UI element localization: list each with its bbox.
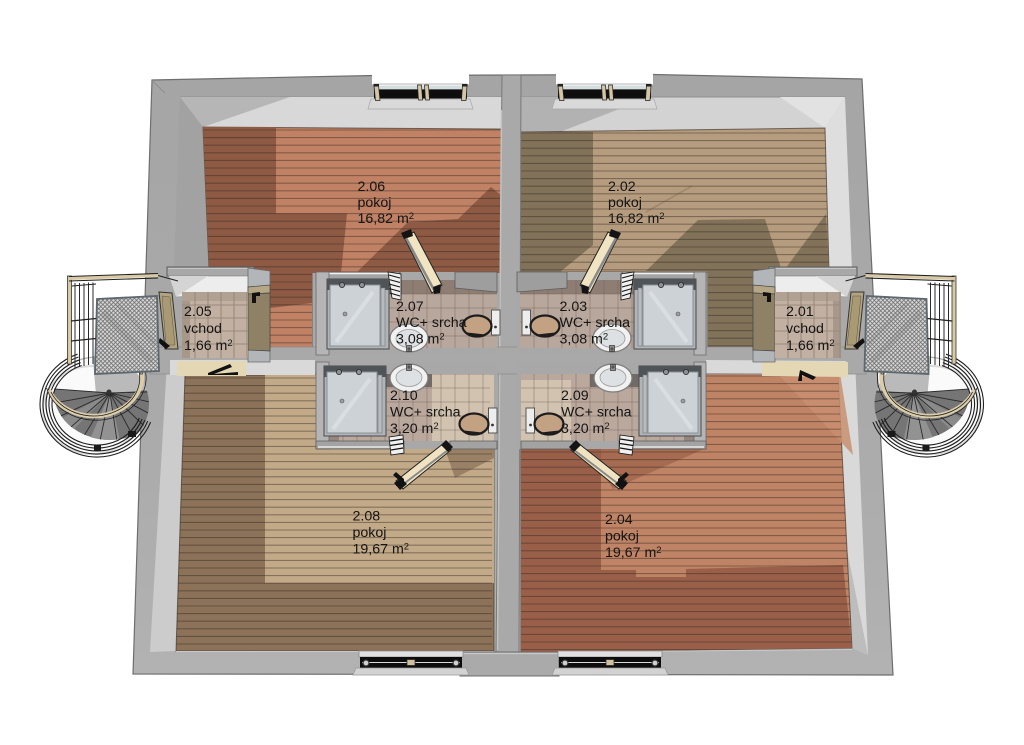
svg-text:2.10: 2.10 bbox=[390, 388, 418, 404]
svg-text:WC+ srcha: WC+ srcha bbox=[396, 315, 467, 331]
svg-text:2.06: 2.06 bbox=[358, 179, 386, 195]
svg-text:2.07: 2.07 bbox=[396, 299, 424, 315]
svg-text:pokoj: pokoj bbox=[605, 529, 639, 545]
svg-text:vchod: vchod bbox=[786, 321, 824, 337]
svg-text:1,66 m2: 1,66 m2 bbox=[184, 338, 233, 354]
svg-text:16,82 m2: 16,82 m2 bbox=[358, 211, 415, 227]
svg-text:WC+ srcha: WC+ srcha bbox=[560, 315, 631, 331]
svg-text:19,67 m2: 19,67 m2 bbox=[353, 542, 410, 558]
svg-text:pokoj: pokoj bbox=[608, 195, 642, 211]
svg-text:1,66 m2: 1,66 m2 bbox=[786, 338, 835, 354]
svg-text:2.02: 2.02 bbox=[608, 179, 636, 195]
svg-text:3,08 m2: 3,08 m2 bbox=[560, 332, 609, 348]
svg-text:2.08: 2.08 bbox=[353, 509, 381, 525]
svg-text:pokoj: pokoj bbox=[358, 195, 392, 211]
svg-text:3,08 m2: 3,08 m2 bbox=[396, 332, 445, 348]
svg-text:19,67 m2: 19,67 m2 bbox=[605, 545, 662, 561]
svg-text:2.03: 2.03 bbox=[560, 299, 588, 315]
svg-text:2.04: 2.04 bbox=[605, 512, 633, 528]
svg-text:WC+ srcha: WC+ srcha bbox=[561, 405, 632, 421]
svg-text:2.09: 2.09 bbox=[561, 388, 589, 404]
svg-text:3,20 m2: 3,20 m2 bbox=[561, 421, 610, 437]
svg-text:vchod: vchod bbox=[184, 321, 222, 337]
svg-text:3,20 m2: 3,20 m2 bbox=[390, 421, 439, 437]
svg-text:2.01: 2.01 bbox=[786, 304, 814, 320]
svg-text:WC+ srcha: WC+ srcha bbox=[390, 405, 461, 421]
svg-text:pokoj: pokoj bbox=[353, 525, 387, 541]
svg-text:2.05: 2.05 bbox=[184, 304, 212, 320]
svg-text:16,82 m2: 16,82 m2 bbox=[608, 211, 665, 227]
